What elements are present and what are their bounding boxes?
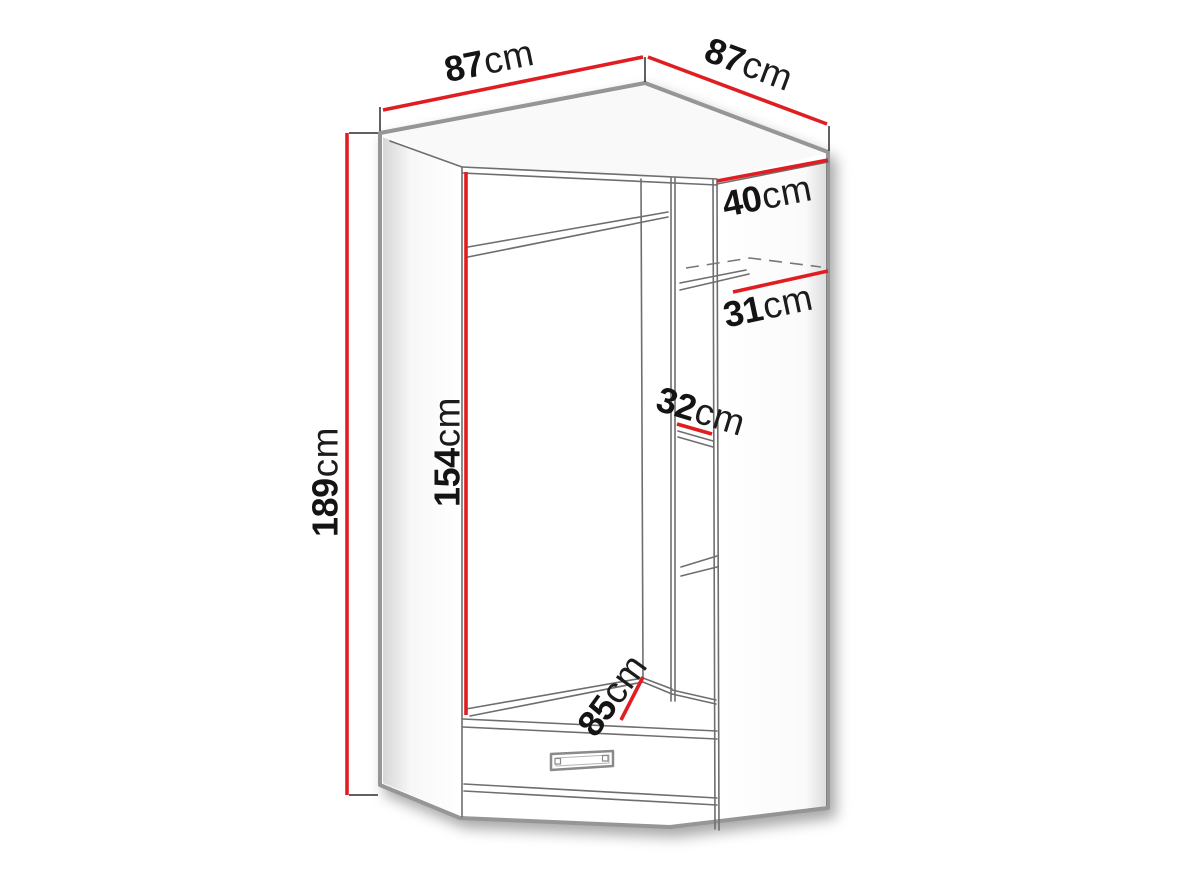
dimension-value: 40 bbox=[719, 177, 765, 225]
dimension-value: 87 bbox=[441, 42, 487, 90]
dimension-label-interior-height: 154cm bbox=[429, 397, 466, 507]
handle-screw-right bbox=[603, 756, 609, 762]
dimension-unit: cm bbox=[305, 427, 346, 477]
dimension-value: 31 bbox=[720, 287, 767, 335]
dimension-unit: cm bbox=[427, 397, 468, 447]
dimension-value: 189 bbox=[305, 478, 346, 537]
wardrobe-line-art bbox=[0, 0, 1177, 883]
handle-screw-left bbox=[555, 759, 561, 765]
wardrobe-dimension-diagram: 87cm 87cm 40cm 31cm 32cm 154cm 189cm 85c… bbox=[0, 0, 1177, 883]
dimension-label-total-height: 189cm bbox=[307, 427, 344, 537]
drawer-handle bbox=[551, 751, 613, 770]
dimension-value: 154 bbox=[427, 448, 468, 507]
